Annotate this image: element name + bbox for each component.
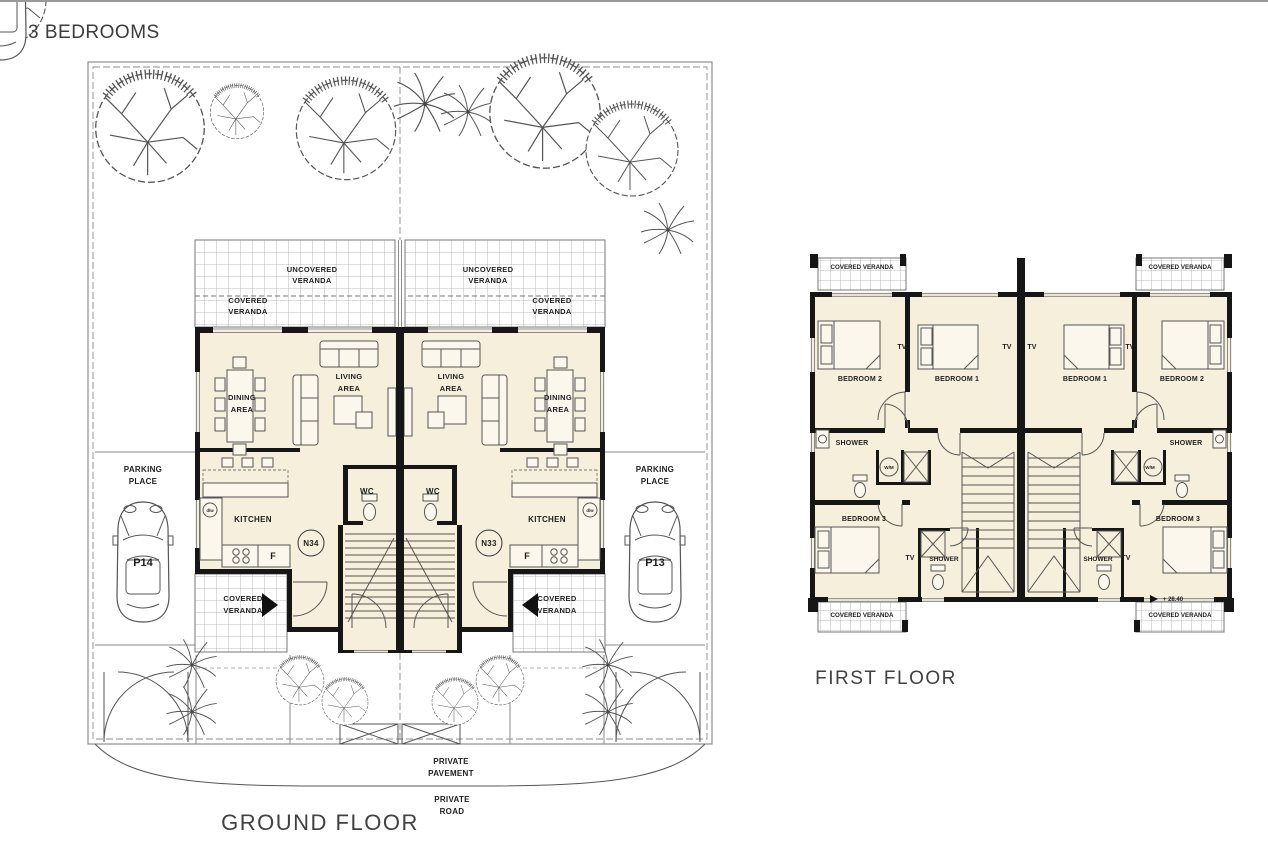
floor-plan-page: 3 BEDROOMS	[0, 0, 1268, 867]
trees-bottom-garden	[166, 639, 632, 734]
label-covered-veranda-bottom-right: COVERED	[537, 594, 576, 603]
label-living-area-right: LIVING	[438, 372, 465, 381]
label-bedroom1-right: BEDROOM 1	[1063, 376, 1107, 383]
unit-number-right: N33	[481, 539, 497, 548]
trees-top-garden	[96, 58, 694, 254]
label-bedroom3-left: BEDROOM 3	[842, 516, 886, 523]
label-tv-1: TV	[897, 344, 906, 351]
label-area: AREA	[338, 384, 361, 393]
label-kitchen-right: KITCHEN	[528, 515, 566, 524]
first-floor-plan: COVERED VERANDA COVERED VERANDA BEDROOM …	[808, 254, 1234, 689]
label-dining-area-right: DINING	[544, 393, 572, 402]
label-kitchen-left: KITCHEN	[234, 515, 272, 524]
car-icon	[0, 0, 30, 60]
pavement-curve	[95, 744, 705, 786]
label-bedroom2-left: BEDROOM 2	[838, 376, 882, 383]
label-fridge-right: F	[524, 551, 530, 561]
ground-floor-caption: GROUND FLOOR	[221, 810, 419, 835]
floor-plan-canvas: UNCOVERED VERANDA UNCOVERED VERANDA COVE…	[0, 0, 1268, 867]
label-shower-upper-right: SHOWER	[1170, 440, 1203, 447]
label-tv-2: TV	[1002, 344, 1011, 351]
label-veranda: VERANDA	[292, 276, 331, 285]
label-tv-lower-left: TV	[905, 555, 914, 562]
party-wall-first-floor	[1017, 258, 1025, 602]
label-covered-veranda-ff-top-right: COVERED VERANDA	[1149, 264, 1212, 271]
label-place: PLACE	[641, 477, 670, 486]
label-shower-lower-right: SHOWER	[1083, 556, 1113, 563]
label-tv-lower-right: TV	[1121, 555, 1130, 562]
label-veranda: VERANDA	[468, 276, 507, 285]
label-fridge-left: F	[270, 551, 276, 561]
label-uncovered-veranda-right: UNCOVERED	[463, 265, 514, 274]
first-floor-caption: FIRST FLOOR	[815, 668, 957, 689]
ground-floor-plan: UNCOVERED VERANDA UNCOVERED VERANDA COVE…	[88, 58, 712, 835]
label-dishwasher-right: d/w	[586, 508, 594, 513]
label-tv-3: TV	[1027, 344, 1036, 351]
label-tv-4: TV	[1125, 344, 1134, 351]
label-area: AREA	[547, 405, 570, 414]
label-wm-right: W/M	[1145, 465, 1155, 470]
label-wc-left: WC	[360, 487, 374, 496]
label-place: PLACE	[129, 477, 158, 486]
first-floor-unit-mirrored	[1025, 254, 1234, 632]
label-bedroom2-right: BEDROOM 2	[1160, 376, 1204, 383]
party-wall	[396, 327, 404, 653]
label-veranda: VERANDA	[223, 606, 262, 615]
label-road: ROAD	[440, 807, 465, 816]
label-bedroom1-left: BEDROOM 1	[935, 376, 979, 383]
label-veranda: VERANDA	[532, 307, 571, 316]
label-covered-veranda-bottom-left: COVERED	[223, 594, 262, 603]
unit-number-left: N34	[303, 539, 319, 548]
label-parking-left: PARKING	[124, 465, 162, 474]
label-uncovered-veranda-left: UNCOVERED	[287, 265, 338, 274]
label-shower-upper-left: SHOWER	[836, 440, 869, 447]
page-title: 3 BEDROOMS	[28, 22, 160, 44]
label-private-road: PRIVATE	[434, 795, 470, 804]
label-dishwasher-left: d/w	[206, 508, 214, 513]
label-covered-veranda-ff-top-left: COVERED VERANDA	[831, 264, 894, 271]
label-veranda: VERANDA	[228, 307, 267, 316]
label-area: AREA	[231, 405, 254, 414]
label-pavement: PAVEMENT	[428, 769, 474, 778]
label-veranda: VERANDA	[537, 606, 576, 615]
top-border-line	[0, 0, 1268, 2]
label-area: AREA	[440, 384, 463, 393]
label-covered-veranda-top-right: COVERED	[532, 296, 571, 305]
label-living-area-left: LIVING	[336, 372, 363, 381]
label-covered-veranda-top-left: COVERED	[228, 296, 267, 305]
label-parking-right: PARKING	[636, 465, 674, 474]
label-shower-lower-left: SHOWER	[929, 556, 959, 563]
label-dining-area-left: DINING	[228, 393, 256, 402]
label-covered-veranda-ff-bottom-right: COVERED VERANDA	[1149, 612, 1212, 619]
parking-number-left: P14	[133, 557, 153, 569]
label-private-pavement: PRIVATE	[433, 757, 469, 766]
parking-number-right: P13	[645, 557, 665, 569]
label-covered-veranda-ff-bottom-left: COVERED VERANDA	[831, 612, 894, 619]
label-wm-left: W/M	[884, 465, 894, 470]
level-mark: + 28.40	[1163, 597, 1184, 603]
label-wc-right: WC	[426, 487, 440, 496]
label-bedroom3-right: BEDROOM 3	[1156, 516, 1200, 523]
